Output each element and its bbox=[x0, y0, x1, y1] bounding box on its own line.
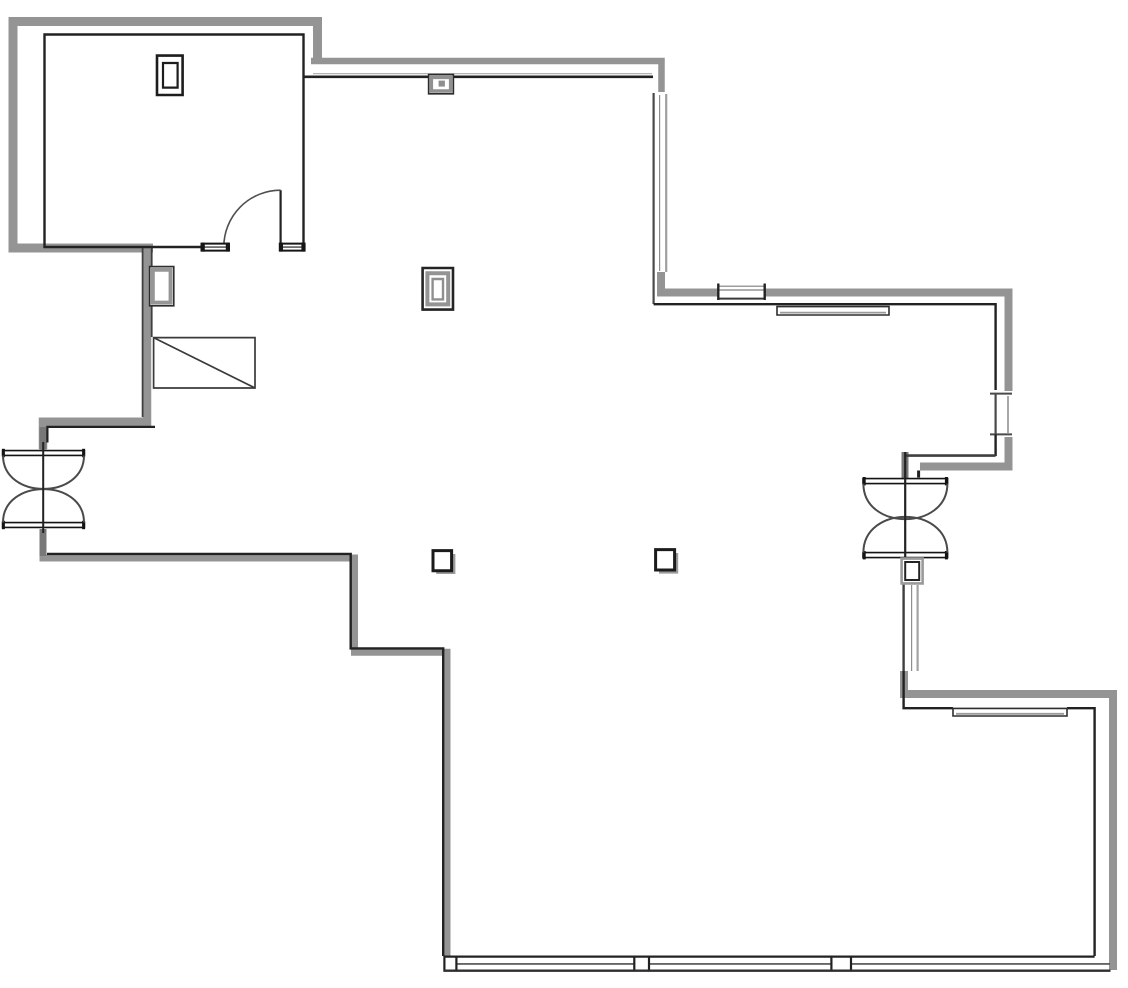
center-fixture-inner bbox=[433, 279, 443, 299]
left-lower-wall-gray bbox=[43, 531, 447, 956]
floorplan-svg bbox=[0, 0, 1128, 988]
window-topright-corner-gray bbox=[661, 272, 718, 293]
left-lower-inner-black bbox=[47, 554, 443, 956]
storefront-post-2-fill bbox=[634, 958, 649, 970]
storefront-post-1-fill bbox=[445, 958, 457, 970]
floorplan-layers bbox=[3, 22, 1113, 972]
right-door-jamb-inner bbox=[905, 562, 919, 580]
room-fixture-outer-rect bbox=[157, 56, 183, 95]
sill-topright-rect bbox=[777, 307, 889, 315]
column-1 bbox=[433, 551, 452, 571]
bottomright-inner-black-west bbox=[904, 671, 953, 708]
right-upper-inner-black bbox=[654, 304, 996, 390]
room-door-swing-arc bbox=[224, 190, 281, 247]
left-jog-inner-black bbox=[47, 427, 155, 443]
storefront-post-3-fill bbox=[831, 958, 851, 970]
topwall-box-dot bbox=[439, 81, 445, 87]
bottomright-inner-black-east bbox=[1067, 708, 1095, 956]
floorplan bbox=[0, 0, 1128, 988]
sill-bottomright-rect bbox=[953, 708, 1067, 716]
left-upper-wall-gray bbox=[43, 248, 147, 449]
column-2 bbox=[656, 550, 675, 570]
